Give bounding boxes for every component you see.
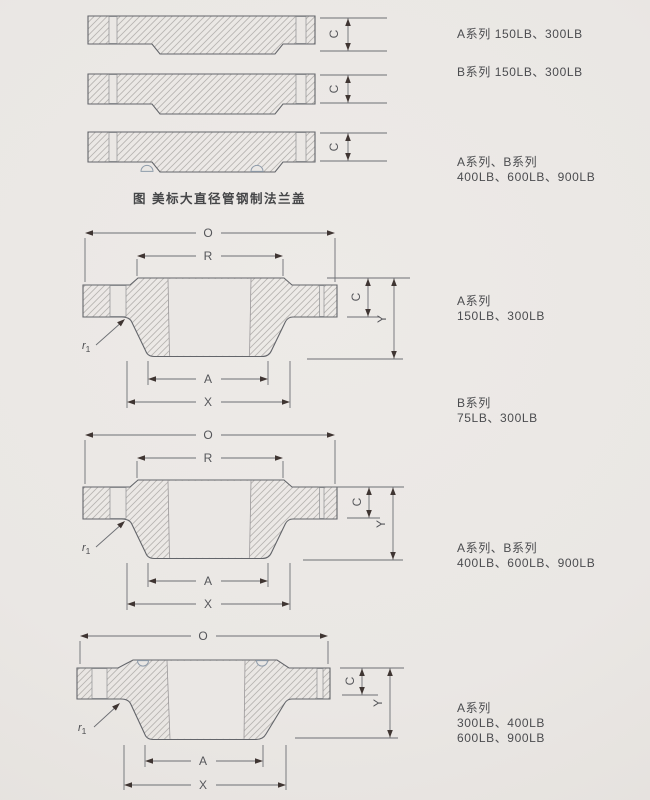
series-label-mid-b: B系列 75LB、300LB [457, 396, 538, 426]
series-label-line: 150LB、300LB [457, 309, 545, 324]
series-label-line: A系列 [457, 701, 545, 716]
dim-label-a: A [204, 372, 212, 386]
bore-face [167, 661, 245, 739]
dim-label-r1-sub: 1 [86, 344, 91, 354]
dim-label-o: O [203, 428, 212, 442]
series-label-top-view-2: B系列 150LB、300LB [457, 65, 583, 80]
flange-cover-section-2 [83, 432, 404, 610]
dim-label-a: A [204, 574, 212, 588]
series-label-line: 600LB、900LB [457, 731, 545, 746]
dim-label-x: X [204, 597, 212, 611]
dim-label-r1: r1 [82, 340, 90, 354]
dim-label-x: X [204, 395, 212, 409]
series-label-line: A系列 [457, 294, 545, 309]
series-label-bottom: A系列 300LB、400LB 600LB、900LB [457, 701, 545, 746]
dim-label-o: O [198, 629, 207, 643]
series-label-line: 75LB、300LB [457, 411, 538, 426]
flange-cover-section-3 [77, 633, 404, 790]
blind-flange-view-1 [88, 16, 387, 54]
dim-label-c: C [327, 30, 341, 39]
blind-flange-view-2 [88, 74, 387, 114]
dim-label-c: C [343, 677, 357, 686]
series-label-line: 400LB、600LB、900LB [457, 170, 595, 185]
dim-label-c: C [327, 143, 341, 152]
blind-flange-view-3 [88, 132, 387, 172]
dim-label-o: O [203, 226, 212, 240]
dim-label-r1: r1 [78, 722, 86, 736]
series-label-line: A系列、B系列 [457, 155, 595, 170]
series-label-top-view-1: A系列 150LB、300LB [457, 27, 583, 42]
bore-face [168, 481, 251, 558]
dim-label-c: C [327, 85, 341, 94]
series-label-line: B系列 [457, 396, 538, 411]
dim-label-y: Y [371, 699, 385, 707]
flange-cover-section-1 [83, 230, 410, 408]
dim-label-c: C [350, 498, 364, 507]
dim-label-r1-sub: 1 [86, 546, 91, 556]
bore-face [168, 279, 251, 356]
dim-label-r1: r1 [82, 542, 90, 556]
groove-arc [141, 165, 153, 171]
dim-label-a: A [199, 754, 207, 768]
dim-label-r1-sub: 1 [82, 726, 87, 736]
figure-line-art [0, 0, 650, 800]
dim-label-c: C [349, 293, 363, 302]
dim-label-r: R [204, 451, 213, 465]
series-label-top-view-3: A系列、B系列 400LB、600LB、900LB [457, 155, 595, 185]
series-label-mid-a: A系列 150LB、300LB [457, 294, 545, 324]
dim-label-y: Y [374, 520, 388, 528]
dim-label-r: R [204, 249, 213, 263]
series-label-line: A系列、B系列 [457, 541, 595, 556]
figure-caption: 图 美标大直径管钢制法兰盖 [133, 188, 306, 207]
dim-label-x: X [199, 778, 207, 792]
series-label-lower: A系列、B系列 400LB、600LB、900LB [457, 541, 595, 571]
dim-label-y: Y [375, 315, 389, 323]
series-label-line: 400LB、600LB、900LB [457, 556, 595, 571]
scanned-figure-page: 图 美标大直径管钢制法兰盖 A系列 150LB、300LB B系列 150LB、… [0, 0, 650, 800]
series-label-line: 300LB、400LB [457, 716, 545, 731]
